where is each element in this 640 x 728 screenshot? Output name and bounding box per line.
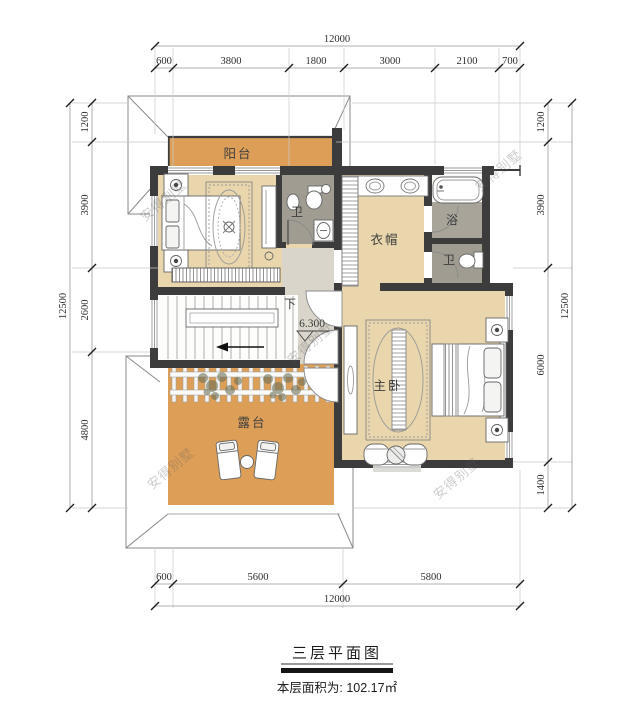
plan-title: 三层平面图	[292, 645, 382, 662]
bed-fold	[444, 344, 458, 416]
dim-bottom-seg-1: 5600	[248, 572, 269, 583]
dim-left-seg-2: 2600	[80, 300, 91, 321]
dim-right-seg-2: 6000	[536, 355, 547, 376]
toilet	[306, 191, 322, 209]
dim-top-total: 12000	[324, 34, 350, 45]
floor-plan-drawing: 阳台 卫 衣帽 浴 卫 主卧 露台 下 6.300 安得别墅 安得别墅 安得别墅…	[0, 0, 640, 728]
wall-bedroom-bath-divider	[276, 174, 282, 246]
dim-left-seg-0: 1200	[80, 112, 91, 133]
dim-top-seg-1: 3800	[221, 56, 242, 67]
tv-cabinet	[344, 326, 357, 434]
room-label-bath-small: 卫	[443, 253, 455, 267]
stair-railing	[186, 309, 278, 327]
wardrobe-cabinet	[262, 186, 276, 248]
title-underline-bar	[281, 668, 393, 673]
balcony-corner-stub	[332, 128, 342, 168]
wardrobe-rail	[342, 176, 358, 286]
dim-right-total: 12500	[560, 293, 571, 319]
dim-bottom-seg-0: 600	[156, 572, 172, 583]
dim-left-seg-1: 3900	[80, 195, 91, 216]
dim-bottom-seg-2: 5800	[421, 572, 442, 583]
floor-plan-page: 阳台 卫 衣帽 浴 卫 主卧 露台 下 6.300 安得别墅 安得别墅 安得别墅…	[0, 0, 640, 728]
title-block: 三层平面图 本层面积为: 102.17㎡	[277, 645, 398, 695]
dim-top-seg-5: 700	[502, 56, 518, 67]
dim-right-seg-0: 1200	[536, 112, 547, 133]
room-label-master-bedroom: 主卧	[373, 379, 402, 393]
dim-top-seg-2: 1800	[306, 56, 327, 67]
wall-section-upper	[334, 166, 342, 250]
closet-hatched	[172, 268, 280, 282]
seating-corner	[364, 444, 427, 465]
room-label-cloakroom: 衣帽	[370, 232, 399, 247]
dim-top-seg-4: 2100	[457, 56, 478, 67]
ceiling-fan-symbol	[223, 221, 235, 233]
dim-bottom-total: 12000	[324, 594, 350, 605]
room-label-balcony: 阳台	[223, 146, 252, 161]
area-note: 本层面积为: 102.17㎡	[277, 681, 398, 695]
dim-right-seg-1: 3900	[536, 195, 547, 216]
dim-top-seg-3: 3000	[380, 56, 401, 67]
dim-left-seg-3: 4800	[80, 420, 91, 441]
terrace-table	[241, 456, 254, 469]
wall-stair-top	[150, 287, 285, 295]
dim-right-seg-3: 1400	[536, 475, 547, 496]
dim-left-total: 12500	[58, 293, 69, 319]
dim-top-seg-0: 600	[156, 56, 172, 67]
toilet-small	[459, 254, 475, 268]
room-label-bath-top: 卫	[291, 205, 303, 219]
room-label-terrace: 露台	[237, 415, 266, 430]
room-label-bath: 浴	[446, 213, 458, 227]
stair-down-label: 下	[284, 297, 296, 311]
